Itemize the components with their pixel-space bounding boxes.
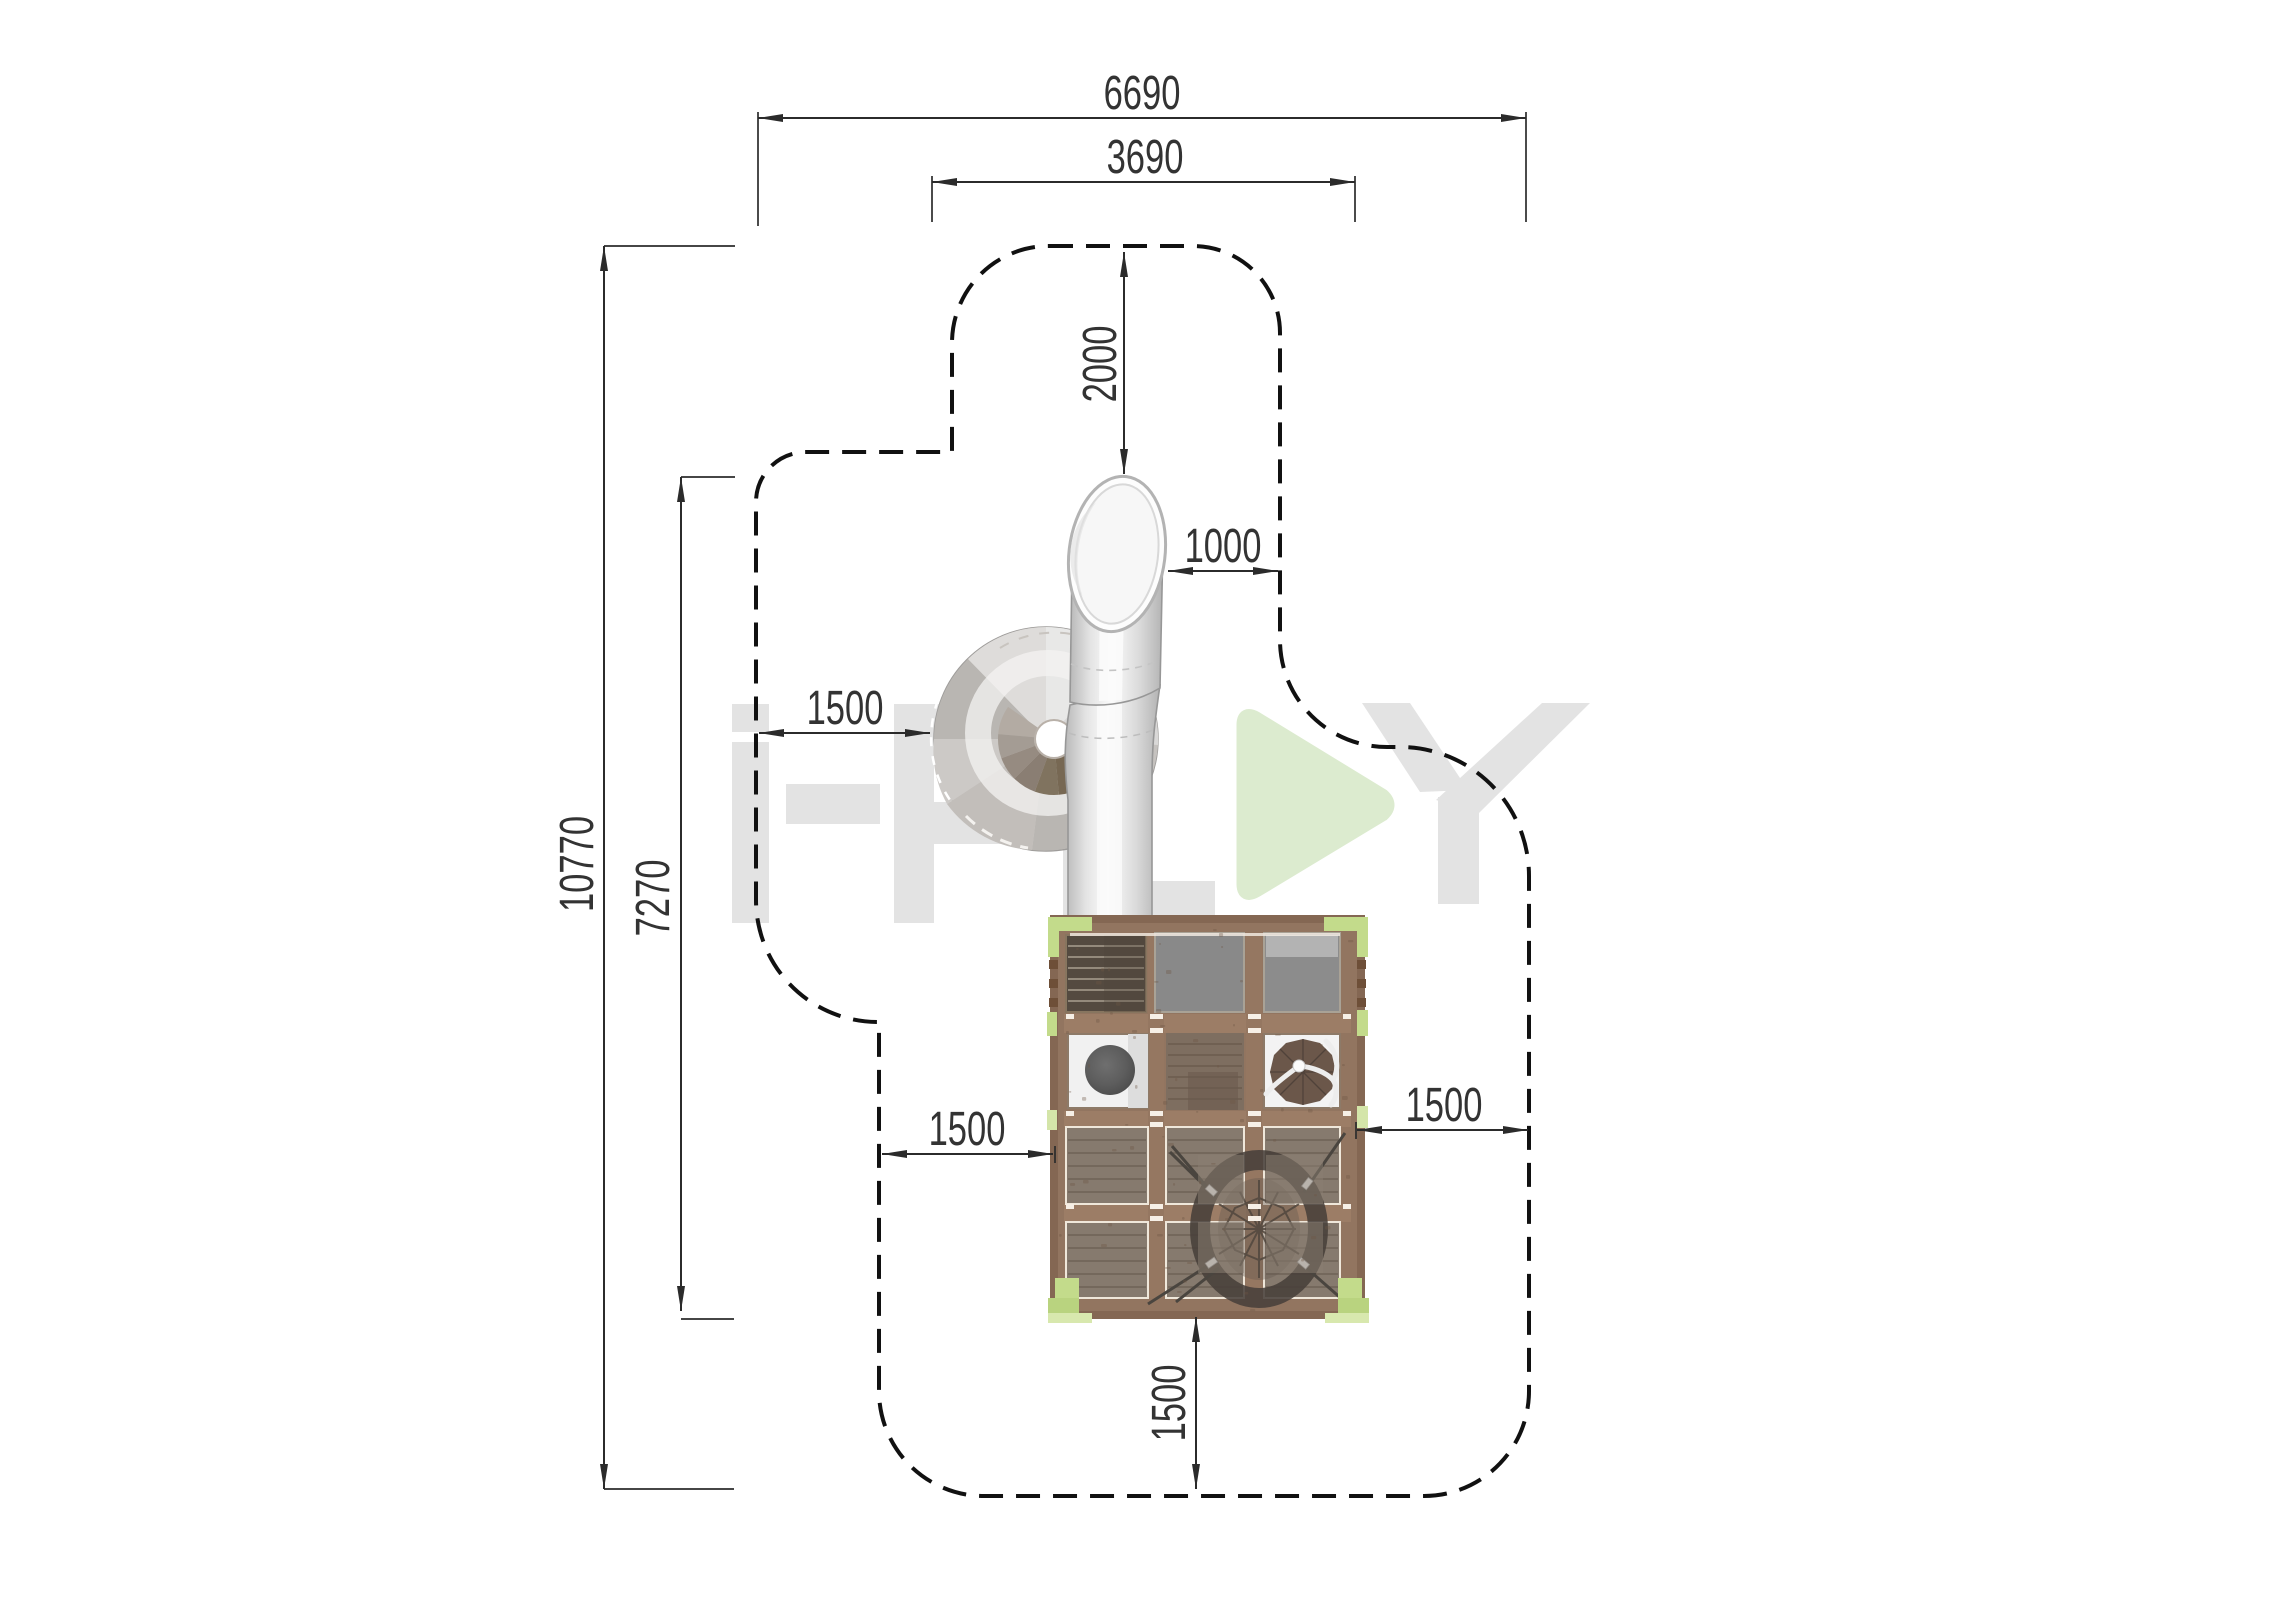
svg-text:7270: 7270 xyxy=(625,860,679,937)
svg-text:6690: 6690 xyxy=(1104,65,1181,119)
svg-text:2000: 2000 xyxy=(1072,326,1126,403)
svg-text:1000: 1000 xyxy=(1185,518,1262,572)
svg-text:1500: 1500 xyxy=(1406,1077,1483,1131)
svg-text:3690: 3690 xyxy=(1107,129,1184,183)
svg-text:1500: 1500 xyxy=(929,1101,1006,1155)
svg-text:1500: 1500 xyxy=(1141,1365,1195,1442)
svg-text:1500: 1500 xyxy=(807,680,884,734)
svg-text:10770: 10770 xyxy=(549,816,603,912)
